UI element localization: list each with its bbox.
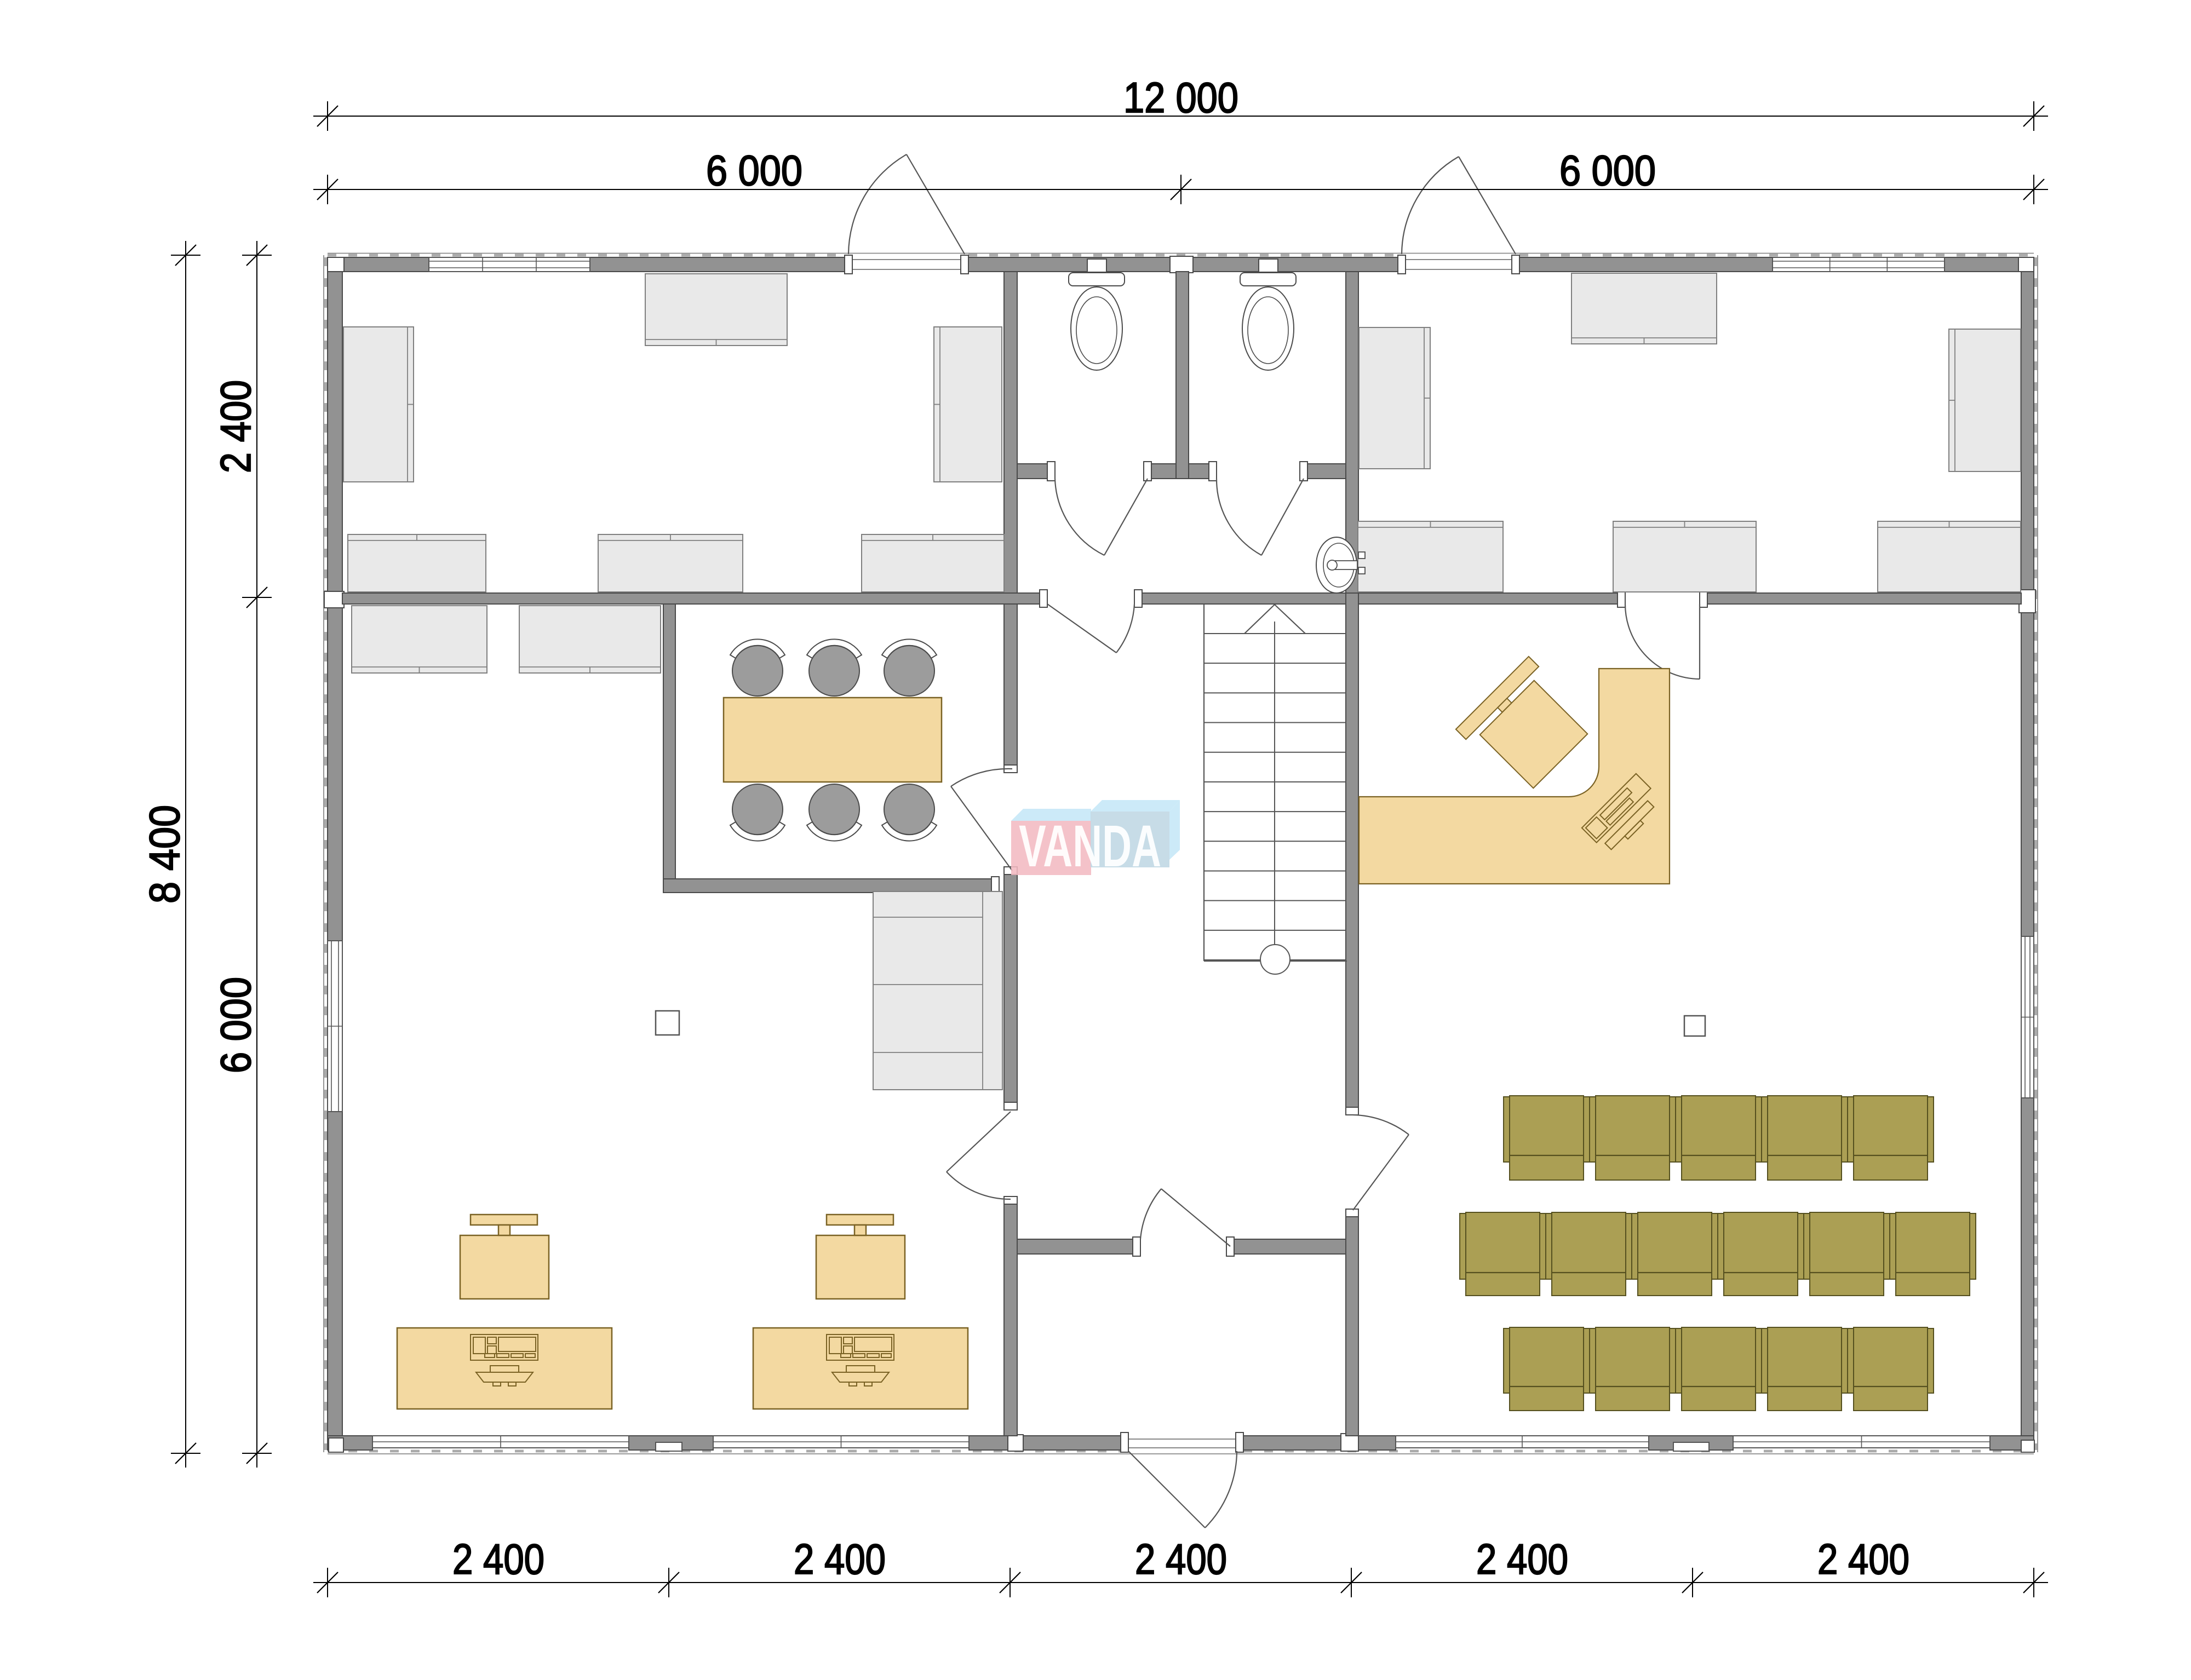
svg-text:2 400: 2 400	[794, 1535, 886, 1583]
svg-text:VANDA: VANDA	[1019, 813, 1161, 879]
svg-text:6 000: 6 000	[211, 977, 260, 1073]
svg-text:12 000: 12 000	[1123, 73, 1238, 122]
svg-text:2 400: 2 400	[1135, 1535, 1227, 1583]
svg-text:2 400: 2 400	[1817, 1535, 1909, 1583]
svg-text:2 400: 2 400	[1476, 1535, 1568, 1583]
svg-text:6 000: 6 000	[1559, 146, 1656, 194]
svg-text:2 400: 2 400	[211, 380, 260, 473]
svg-text:8 400: 8 400	[140, 805, 188, 904]
svg-text:2 400: 2 400	[452, 1535, 544, 1583]
svg-text:6 000: 6 000	[706, 146, 802, 194]
